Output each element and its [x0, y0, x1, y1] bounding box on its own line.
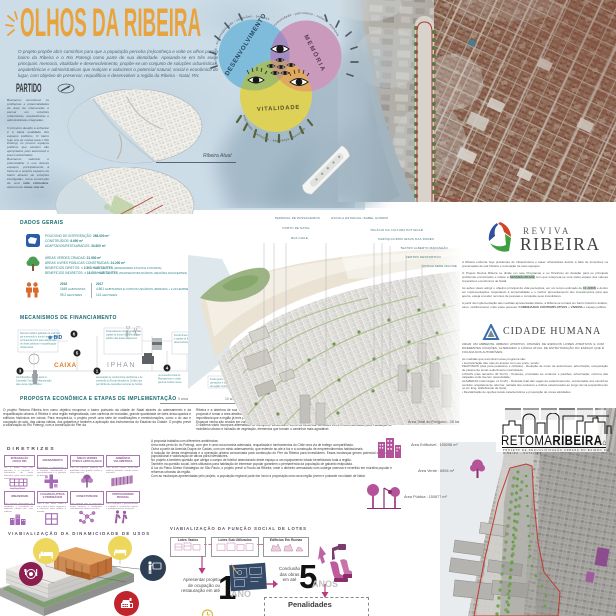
svg-text:CAIXA: CAIXA	[54, 362, 77, 369]
svg-text:das novas organizações: das novas organizações	[16, 383, 43, 386]
svg-text:geral de fundos novos: geral de fundos novos	[158, 381, 182, 384]
svg-text:IPHAN: IPHAN	[107, 362, 136, 369]
svg-text:⊛ BID: ⊛ BID	[48, 335, 63, 341]
svg-text:urbana local: urbana local	[20, 346, 33, 349]
svg-text:público das áreas adjacentes: público das áreas adjacentes	[106, 337, 138, 340]
svg-text:permitirão de operações técnic: permitirão de operações técnicas de fund…	[96, 383, 143, 386]
